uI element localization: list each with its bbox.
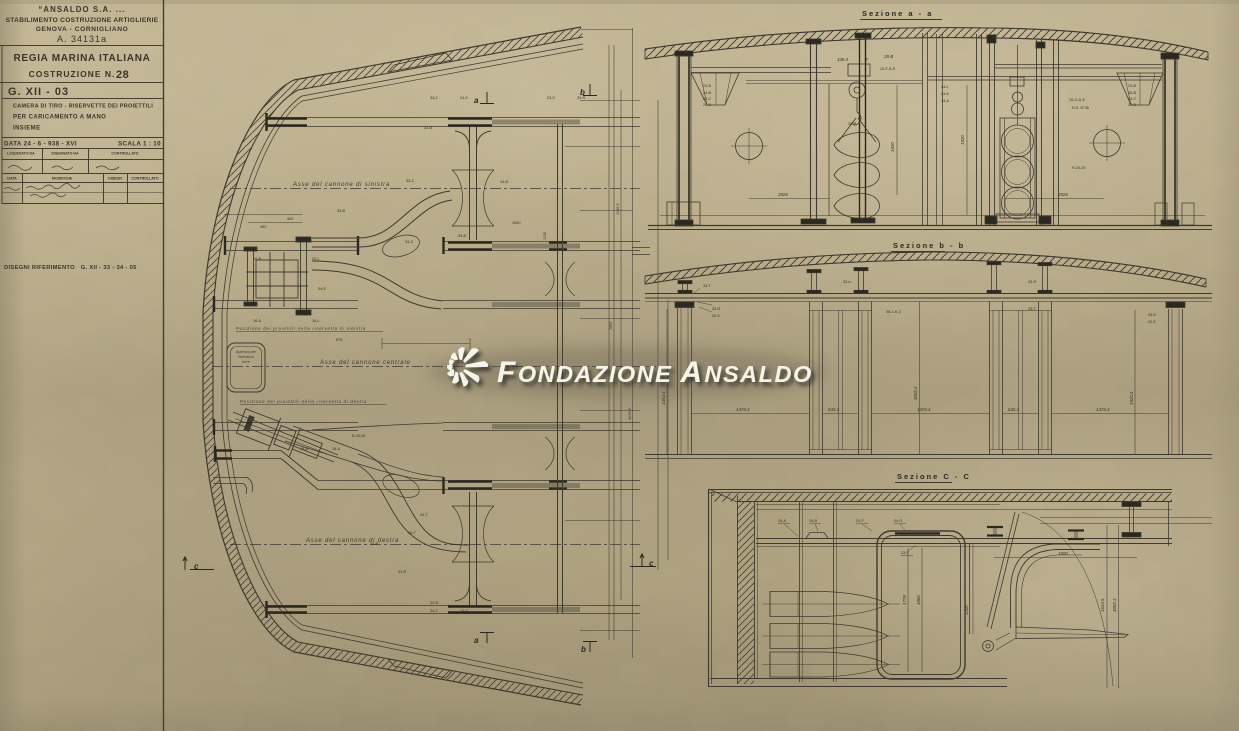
svg-text:INSIEME: INSIEME [13,126,40,132]
svg-text:24-5: 24-5 [460,609,468,613]
svg-text:MODIFICHE: MODIFICHE [52,177,73,181]
svg-text:24-D: 24-D [703,103,711,107]
svg-text:24-B: 24-B [703,91,711,95]
svg-text:PER CARICAMENTO A MANO: PER CARICAMENTO A MANO [13,115,106,121]
svg-text:DATA 24 - 6 - 938 - XVI: DATA 24 - 6 - 938 - XVI [4,141,77,148]
svg-text:1778: 1778 [902,595,907,605]
svg-text:33-C: 33-C [406,179,414,183]
svg-text:1200: 1200 [964,605,969,615]
svg-text:10-C-D-E: 10-C-D-E [1069,98,1086,102]
svg-text:1476.4: 1476.4 [736,407,750,412]
svg-text:19-B: 19-B [809,519,817,523]
svg-text:16-A: 16-A [253,319,261,323]
svg-text:24-T: 24-T [420,513,428,517]
svg-text:24-5: 24-5 [460,96,468,100]
svg-text:26-B: 26-B [1128,91,1136,95]
svg-text:CONTROLLATO: CONTROLLATO [111,152,138,156]
svg-text:DATA: DATA [7,177,17,181]
svg-text:1476.4: 1476.4 [917,407,931,412]
svg-text:GENOVA - CORNIGLIANO: GENOVA - CORNIGLIANO [36,26,129,33]
svg-text:24-C: 24-C [703,97,711,101]
svg-text:CAMERA DI TIRO - RISERVETTE DE: CAMERA DI TIRO - RISERVETTE DEI PROIETTI… [13,104,153,110]
svg-text:643.4: 643.4 [828,407,840,412]
svg-text:l'entrata in: l'entrata in [238,355,254,359]
svg-text:24-F: 24-F [856,519,864,523]
svg-text:STABILIMENTO COSTRUZIONE ARTIG: STABILIMENTO COSTRUZIONE ARTIGLIERIE [6,17,159,24]
svg-text:34-B: 34-B [500,180,508,184]
svg-text:DISEGN: DISEGN [108,177,122,181]
svg-text:1800: 1800 [916,595,921,605]
svg-text:28-A: 28-A [332,447,340,451]
svg-text:33-B: 33-B [430,601,438,605]
svg-text:1920.4: 1920.4 [1129,391,1134,405]
svg-text:23-B: 23-B [1128,84,1136,88]
svg-text:23-B: 23-B [703,84,711,88]
svg-text:Posizione dei proiettili nella: Posizione dei proiettili nella riservett… [240,399,367,404]
svg-text:1000: 1000 [1058,551,1068,556]
svg-text:24-D: 24-D [1128,103,1136,107]
svg-text:Asse del cannone di sinist: Asse del cannone di sinistra [292,182,390,188]
svg-text:SCALA 1 : 10: SCALA 1 : 10 [118,141,161,148]
svg-text:33-R: 33-R [577,96,585,100]
svg-text:34-C: 34-C [405,240,413,244]
svg-text:D.S. N°36: D.S. N°36 [1072,106,1089,110]
svg-text:b: b [581,645,586,654]
svg-text:23-F: 23-F [901,551,909,555]
svg-text:33-T: 33-T [703,284,711,288]
svg-text:20-R: 20-R [848,122,856,126]
svg-text:4002.4: 4002.4 [1112,598,1117,612]
svg-text:16-R: 16-R [253,257,261,261]
svg-text:a: a [474,636,479,645]
svg-text:1920: 1920 [890,142,895,152]
svg-text:a: a [474,96,479,105]
svg-text:33-K: 33-K [1148,313,1156,317]
svg-text:4076.5: 4076.5 [628,407,632,420]
svg-text:28: 28 [116,69,129,81]
svg-text:20-L: 20-L [312,257,320,261]
svg-text:24-R: 24-R [370,542,378,546]
svg-text:34-2: 34-2 [430,609,438,613]
svg-text:A. 34131a: A. 34131a [57,34,107,44]
svg-text:DISEGNATO DA: DISEGNATO DA [51,152,79,156]
svg-text:34-A: 34-A [941,99,949,103]
svg-text:18-B: 18-B [300,447,308,451]
svg-text:1890: 1890 [512,221,521,225]
svg-text:2026: 2026 [1057,192,1068,197]
svg-text:34-E: 34-E [318,287,326,291]
svg-text:3002.4: 3002.4 [913,386,918,400]
svg-text:900: 900 [287,217,294,221]
svg-text:Asse del cannone centrale: Asse del cannone centrale [319,360,411,366]
svg-text:Sezione a - a: Sezione a - a [862,9,933,18]
svg-text:34-B: 34-B [337,209,345,213]
svg-text:450: 450 [260,225,267,229]
svg-text:645.4: 645.4 [1008,407,1020,412]
svg-text:FONDAZIONEANSALDO: FONDAZIONEANSALDO [497,356,813,389]
svg-text:38-1-K-2: 38-1-K-2 [886,310,901,314]
svg-text:24-L: 24-L [941,85,949,89]
svg-text:B.20-28: B.20-28 [352,434,365,438]
svg-text:Sezione C - C: Sezione C - C [897,472,971,481]
svg-text:876: 876 [336,338,343,342]
svg-text:33-R: 33-R [712,307,720,311]
svg-text:1476.4: 1476.4 [1096,407,1110,412]
svg-text:REGIA MARINA ITALIANA: REGIA MARINA ITALIANA [13,53,150,64]
svg-text:Sezione b - b: Sezione b - b [893,241,965,250]
svg-text:20-5: 20-5 [712,314,720,318]
svg-text:24-K: 24-K [941,92,949,96]
svg-text:24-A: 24-A [778,519,786,523]
svg-text:336.3: 336.3 [837,57,849,62]
svg-text:1614.5: 1614.5 [1100,598,1105,612]
svg-text:33-B: 33-B [424,126,432,130]
svg-text:Asse del cannone di destra: Asse del cannone di destra [305,538,399,544]
svg-text:24-C: 24-C [1128,97,1136,101]
svg-text:“ANSALDO S.A. ...: “ANSALDO S.A. ... [38,5,125,14]
svg-text:28-B: 28-B [883,54,893,59]
svg-text:34-B: 34-B [458,234,466,238]
svg-text:CONTROLLATO: CONTROLLATO [131,177,158,181]
svg-text:Apertura per: Apertura per [235,350,257,354]
svg-text:1002: 1002 [609,321,613,330]
svg-text:20-5: 20-5 [1148,320,1156,324]
svg-text:1132: 1132 [543,231,547,240]
svg-text:33-R: 33-R [398,570,406,574]
svg-text:24-G: 24-G [894,519,902,523]
svg-text:33-R: 33-R [1028,280,1036,284]
svg-text:23-5: 23-5 [547,96,555,100]
svg-text:Posizione dei proiettili nella: Posizione dei proiettili nella riservett… [236,326,366,331]
svg-text:30-F: 30-F [408,531,416,535]
svg-text:1145.5: 1145.5 [616,203,620,215]
svg-text:12-F-5-R: 12-F-5-R [880,67,895,71]
svg-text:R.20-25: R.20-25 [1072,166,1086,170]
svg-text:16-L: 16-L [312,319,320,323]
svg-text:2026: 2026 [777,192,788,197]
svg-text:1920: 1920 [960,135,965,145]
svg-text:G. XII - 03: G. XII - 03 [8,86,69,98]
svg-text:torre: torre [242,360,249,364]
svg-text:33-T: 33-T [1028,307,1036,311]
svg-text:-7: -7 [864,57,868,62]
svg-text:COSTRUZIONE N.: COSTRUZIONE N. [29,69,116,79]
svg-text:33-b: 33-b [843,280,851,284]
svg-text:DISEGNI RIFERIMENTO G. XII: DISEGNI RIFERIMENTO G. XII - 33 - 34 - 0… [4,265,137,271]
svg-text:34-2: 34-2 [430,96,438,100]
svg-text:LICENZIATO DA: LICENZIATO DA [7,152,35,156]
